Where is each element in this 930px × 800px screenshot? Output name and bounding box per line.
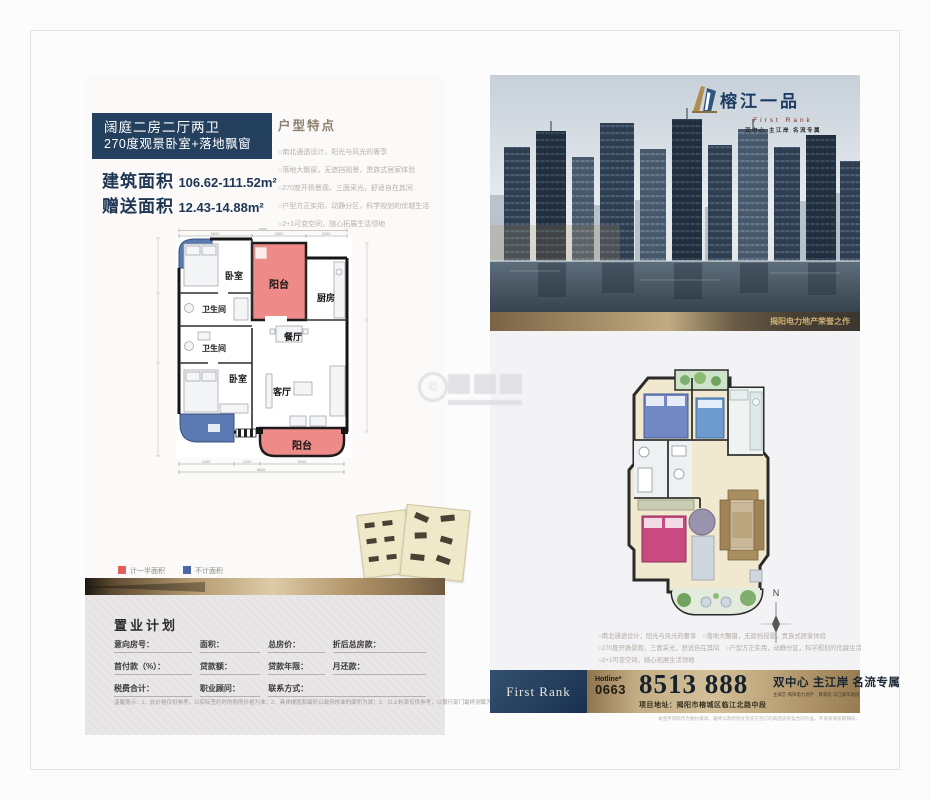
features-block-right: ○南北通透设计，阳光与风光的奢享 ○落地大飘窗，无遮挡视景，贵族式居家体验 ○2…: [598, 631, 860, 667]
photo-site-watermark: ©: [418, 366, 530, 412]
form-disclaimer: 温馨提示：1、此价格仅供参考，以实际签约时的购房价格为准；2、具体楼层和面积以政…: [114, 698, 426, 706]
brand-english-name: First Rank: [724, 117, 842, 124]
feature-line: ○2+1可变空间，随心拓展生活领地: [598, 655, 860, 667]
watermark-copyright-icon: ©: [418, 372, 448, 402]
legend-half-swatch: [118, 566, 126, 574]
brochure-page: 阔庭二房二厅两卫 270度观景卧室+落地飘窗 建筑面积 106.62-111.5…: [0, 0, 930, 800]
legal-disclaimer: 本宣传资料仅为要约邀请，最终以政府批文及双方签订的商品房买卖合同为准，开发商保留…: [565, 716, 860, 722]
form-row-3: 税费合计： 职业顾问： 联系方式：: [114, 681, 426, 697]
dim-bottom-2: 1200: [243, 460, 251, 464]
room-label-balcony-top: 阳台: [269, 278, 289, 291]
no-count-corner-bottom: [180, 414, 234, 442]
feature-line: ○南北通透设计，阳光与风光的奢享 ○落地大飘窗，无遮挡视景，贵族式居家体验: [598, 631, 860, 643]
hotline-number: 8513 888: [639, 669, 748, 700]
dim-top-2: 2800: [275, 232, 283, 236]
headline-line2: 270度观景卧室+落地飘窗: [104, 136, 272, 153]
features-block: 户型特点 ○南北通透设计，阳光与风光的奢享 ○落地大飘窗，无遮挡视景，贵族式居家…: [278, 115, 443, 234]
field-advisor: 职业顾问：: [200, 683, 240, 696]
headline-line1: 阔庭二房二厅两卫: [104, 119, 272, 136]
room-label-bath1: 卫生间: [202, 304, 226, 314]
room-label-bed2: 卧室: [229, 373, 247, 384]
photo-caption: 揭阳电力地产荣誉之作: [770, 317, 850, 326]
field-loan-amount: 贷款额：: [200, 661, 232, 674]
brand-plate: First Rank: [490, 670, 587, 713]
photo-caption-strip: 揭阳电力地产荣誉之作: [490, 312, 860, 331]
form-row-2: 首付款（%）： 贷款额： 贷款年限： 月还款：: [114, 659, 426, 675]
dim-bottom-3: 5000: [298, 460, 306, 464]
hotline-gold-area: Hotline* 0663 8513 888 双中心 主江岸 名流专属 主城芯·…: [587, 670, 860, 713]
build-area-label: 建筑面积: [102, 172, 174, 191]
room-label-bath2: 卫生间: [202, 343, 226, 353]
field-loan-years: 贷款年限：: [268, 661, 308, 674]
room-label-bed1: 卧室: [225, 270, 243, 281]
entry-mat: [236, 429, 256, 437]
dim-top-total: 9600: [259, 228, 267, 231]
feature-item: ○南北通透设计，阳光与风光的奢享: [278, 144, 443, 162]
dim-top-3: 2200: [322, 232, 330, 236]
hotline-slogan-sub: 主城芯·揭阳电力地产 尊荣居·滨江豪华地段: [773, 692, 863, 698]
field-downpayment: 首付款（%）：: [114, 661, 165, 674]
field-monthly-payment: 月还款：: [333, 661, 365, 674]
build-area-value: 106.62-111.52m²: [178, 175, 276, 190]
feature-item: ○270度开扬景观，三面采光，舒适自在其间: [278, 180, 443, 198]
room-label-dining: 餐厅: [283, 331, 302, 342]
room-label-living: 客厅: [272, 386, 291, 397]
legend-none-label: 不计面积: [195, 568, 223, 575]
form-row-1: 意向房号： 面积： 总房价： 折后总房款：: [114, 637, 426, 653]
gift-area-label: 赠送面积: [102, 197, 174, 216]
hotline-area-code: 0663: [595, 685, 626, 695]
field-total-price: 总房价：: [268, 639, 300, 652]
dim-top-1: 5600: [211, 232, 219, 236]
gold-divider-bar: [85, 578, 445, 595]
legend-no-count: 不计面积: [183, 566, 223, 576]
brand-logo: 榕江一品 First Rank 双中心 主江岸 名流专属: [690, 83, 858, 134]
purchase-plan-title: 置业计划: [114, 615, 178, 634]
field-tax-total: 税费合计：: [114, 683, 154, 696]
feature-item: ○户型方正实用，动静分区，科学规划的优越生活: [278, 198, 443, 216]
hotline-prefix: Hotline* 0663: [595, 675, 626, 695]
brand-name: 榕江一品: [720, 87, 800, 112]
dim-bottom-total: 8600: [257, 468, 265, 472]
compass-n-label: N: [773, 588, 780, 598]
gift-area-value: 12.43-14.88m²: [178, 200, 263, 215]
field-contact: 联系方式：: [268, 683, 308, 696]
floorplan-line-drawing: 9600 5600 2800 2200: [148, 228, 373, 480]
field-room-no: 意向房号：: [114, 639, 154, 652]
room-label-balcony-bottom: 阳台: [292, 439, 312, 452]
hotline-slogan-block: 双中心 主江岸 名流专属 主城芯·揭阳电力地产 尊荣居·滨江豪华地段: [773, 674, 863, 698]
hotline-bar: First Rank Hotline* 0663 8513 888 双中心 主江…: [490, 670, 860, 713]
legend-none-swatch: [183, 566, 191, 574]
left-panel: 阔庭二房二厅两卫 270度观景卧室+落地飘窗 建筑面积 106.62-111.5…: [85, 75, 445, 578]
hotline-slogan: 双中心 主江岸 名流专属: [773, 674, 863, 690]
project-address: 项目地址：揭阳市榕城区临江北路中段: [639, 700, 767, 710]
dim-bottom-1: 2400: [202, 460, 210, 464]
features-title: 户型特点: [278, 115, 443, 134]
legend-half-label: 计一半面积: [130, 568, 165, 575]
floorplan-color-rendering: [580, 340, 870, 630]
brand-tagline: 双中心 主江岸 名流专属: [724, 126, 842, 134]
purchase-plan-section: 置业计划 意向房号： 面积： 总房价： 折后总房款： 首付款（%）： 贷款额： …: [85, 595, 445, 735]
balcony-garden: [672, 588, 762, 614]
legend-half-area: 计一半面积: [118, 566, 165, 576]
feature-item: ○落地大飘窗，无遮挡视景，贵族式居家体验: [278, 162, 443, 180]
room-label-kitchen: 厨房: [317, 292, 335, 303]
site-key-plan: [399, 504, 470, 582]
field-discounted-total: 折后总房款：: [333, 639, 381, 652]
brand-logo-icon: [690, 83, 720, 115]
feature-line: ○270度开扬景观，三面采光，舒适自在其间 ○户型方正实用，动静分区，科学规划的…: [598, 643, 860, 655]
field-area: 面积：: [200, 639, 224, 652]
headline-box: 阔庭二房二厅两卫 270度观景卧室+落地飘窗: [92, 113, 272, 159]
